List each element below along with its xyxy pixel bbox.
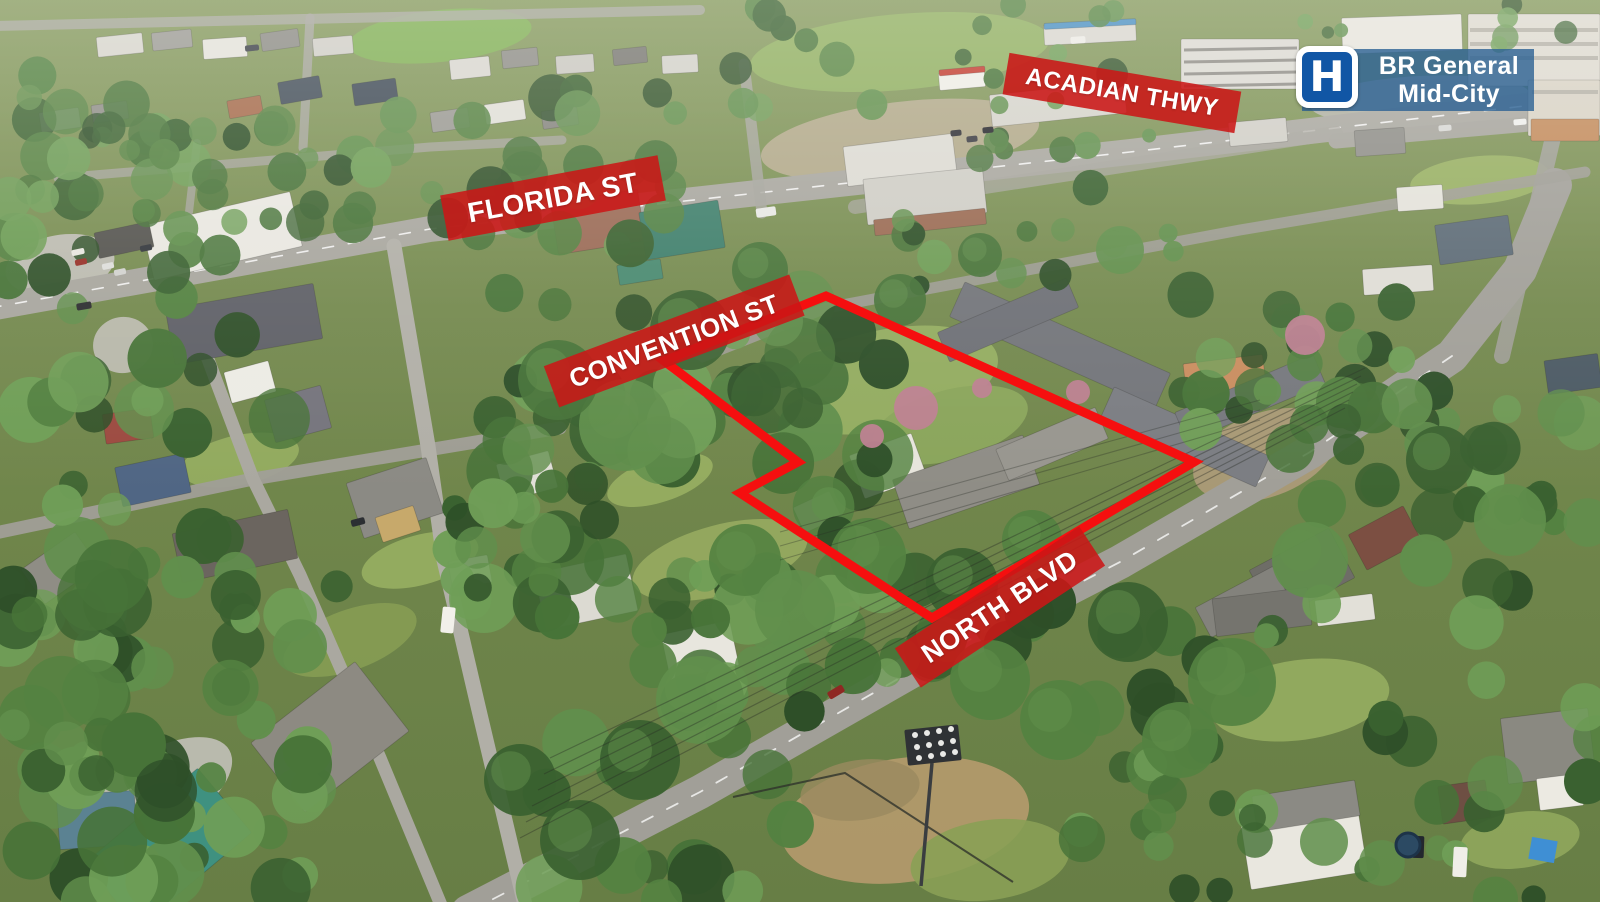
atmospheric-haze — [0, 0, 1600, 902]
aerial-listing-image: FLORIDA ST ACADIAN THWY CONVENTION ST NO… — [0, 0, 1600, 902]
hospital-badge: BR General Mid-City H — [1296, 46, 1538, 112]
hospital-badge-line1: BR General — [1364, 52, 1534, 80]
hospital-h-icon: H — [1296, 46, 1358, 108]
hospital-badge-line2: Mid-City — [1364, 80, 1534, 108]
aerial-photo — [0, 0, 1600, 902]
